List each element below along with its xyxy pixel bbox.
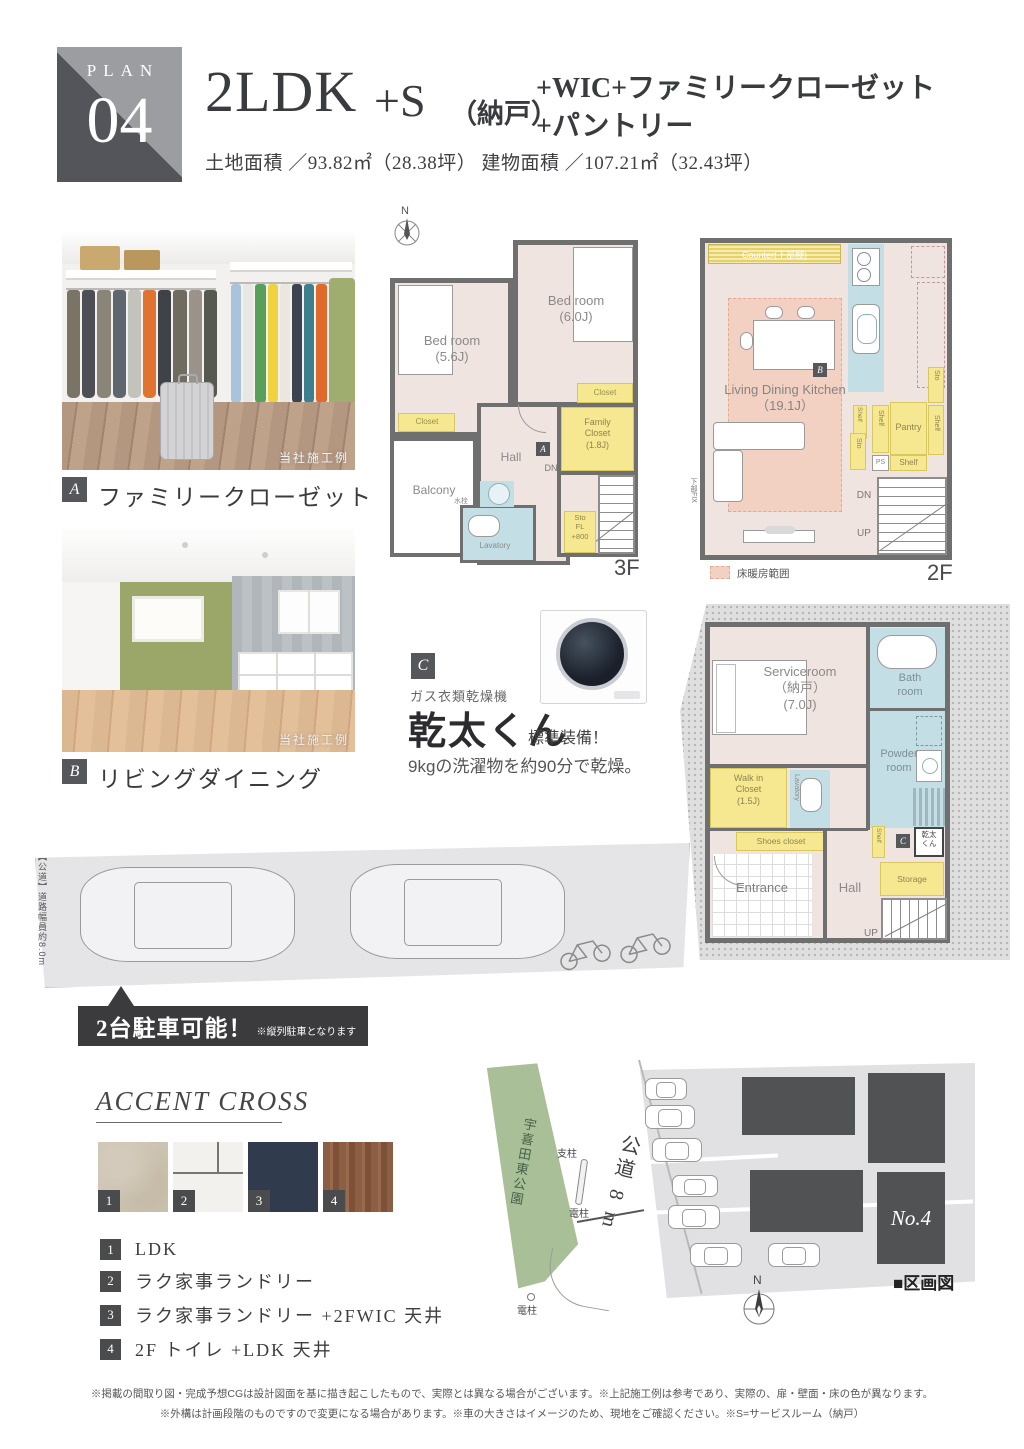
decor-downlight2 xyxy=(262,552,268,558)
decor-road-curve xyxy=(543,1248,618,1312)
title-main: 2LDK xyxy=(205,58,357,125)
accent-title: ACCENT CROSS xyxy=(96,1086,309,1117)
badge-a-3f: A xyxy=(536,442,550,456)
decor-swatch2-vline xyxy=(217,1142,219,1174)
decor-sofa-1 xyxy=(713,422,805,450)
badge-c-1f: C xyxy=(896,834,910,848)
decor-fridge-dashed xyxy=(911,246,945,278)
dryer-image xyxy=(540,610,647,704)
accent-item-1-label: LDK xyxy=(135,1239,178,1260)
area-line: 土地面積 ／93.82㎡（28.38坪） 建物面積 ／107.21㎡（32.43… xyxy=(205,148,763,175)
parking-area xyxy=(35,840,690,988)
decor-bathtub xyxy=(877,635,937,669)
accent-item-2-num: 2 xyxy=(100,1271,121,1292)
site-road-label: 公道 8 m xyxy=(593,1131,645,1235)
plan-badge-label: PLAN xyxy=(57,61,182,81)
label-floor-3f: 3F xyxy=(614,555,640,581)
photo-b-watermark: 当社施工例 xyxy=(279,731,349,748)
site-car-5 xyxy=(668,1205,720,1229)
parking-road-label: 【公道】道路幅員約8.0m xyxy=(36,852,49,982)
label-lavatory-3f: Lavatory xyxy=(465,541,525,551)
plan-badge: PLAN 04 xyxy=(57,47,182,182)
label-floor-2f: 2F xyxy=(927,560,953,586)
label-shelf-1f: Shelf xyxy=(874,828,882,843)
floorplan-2f: Counter(下部棚) B Living Dining Kitchen （19… xyxy=(695,230,985,585)
caption-b-badge: B xyxy=(62,759,87,784)
accent-item-3-label: ラク家事ランドリー +2FWIC 天井 xyxy=(135,1302,444,1328)
decor-suitcase xyxy=(160,382,214,460)
label-powder: Powder room xyxy=(875,748,923,776)
wall-under-service xyxy=(708,764,868,768)
decor-pole-shape xyxy=(575,1159,588,1206)
label-hall-1f: Hall xyxy=(828,880,872,896)
accent-list: 1 LDK 2 ラク家事ランドリー 3 ラク家事ランドリー +2FWIC 天井 … xyxy=(100,1239,444,1362)
parking-banner-note: ※縦列駐車となります xyxy=(257,1023,357,1038)
decor-shelf-left xyxy=(66,270,216,280)
wall-bath-powder xyxy=(870,708,945,711)
label-lavatory-1f: Lavatory xyxy=(791,774,800,801)
label-faucet: 水栓 xyxy=(446,498,476,507)
accent-swatch-3: 3 xyxy=(248,1142,318,1212)
label-up-1f: UP xyxy=(858,928,884,941)
decor-downlight1 xyxy=(182,542,188,548)
accent-item-2: 2 ラク家事ランドリー xyxy=(100,1268,444,1294)
label-shelf2: Shelf xyxy=(875,410,884,426)
accent-item-1: 1 LDK xyxy=(100,1239,444,1260)
photo-a-watermark: 当社施工例 xyxy=(279,449,349,466)
site-car-4 xyxy=(672,1175,718,1197)
decor-burner2 xyxy=(857,268,871,282)
floorplan-3f: N Bed room (5.6J) Bed room (6.0J) Closet… xyxy=(388,205,656,577)
photo-family-closet: 当社施工例 xyxy=(62,230,355,470)
label-sto-3f: Sto FL +800 xyxy=(566,513,594,541)
label-storage: Storage xyxy=(880,874,944,885)
accent-item-4: 4 2F トイレ +LDK 天井 xyxy=(100,1336,444,1362)
label-pantry: Pantry xyxy=(890,422,927,433)
site-building-3 xyxy=(750,1170,863,1232)
decor-swatch2-hline xyxy=(173,1172,243,1174)
site-building-1 xyxy=(742,1077,855,1135)
label-bedroom-56j: Bed room (5.6J) xyxy=(402,333,502,366)
decor-powder-mat xyxy=(913,788,945,826)
accent-item-1-num: 1 xyxy=(100,1239,121,1260)
decor-sofa-2 xyxy=(713,450,743,502)
site-car-3 xyxy=(652,1138,702,1162)
footer-line1: ※掲載の間取り図・完成予想CGは設計図面を基に描き起こしたもので、実際とは異なる… xyxy=(0,1386,1024,1401)
decor-toilet-3f xyxy=(468,515,500,537)
decor-window-mullion xyxy=(308,590,310,634)
wall-above-shoes xyxy=(708,828,868,831)
label-sto-right: Sto xyxy=(931,370,940,381)
label-wic: Walk in Closet (1.5J) xyxy=(713,773,784,807)
label-dn-2f: DN xyxy=(851,490,877,503)
label-balcony: Balcony xyxy=(394,483,474,498)
accent-item-3: 3 ラク家事ランドリー +2FWIC 天井 xyxy=(100,1302,444,1328)
label-hall-3f: Hall xyxy=(486,450,536,465)
site-compass-icon xyxy=(737,1285,781,1329)
label-bathroom: Bath room xyxy=(880,672,940,700)
dryer-door xyxy=(556,618,628,690)
accent-underline xyxy=(96,1122,282,1123)
decor-shelf-right xyxy=(230,262,352,272)
accent-item-2-label: ラク家事ランドリー xyxy=(135,1268,315,1294)
label-dn-3f: DN xyxy=(538,463,564,474)
caption-a-text: ファミリークローゼット xyxy=(98,478,373,512)
decor-ceiling-b xyxy=(62,524,355,582)
site-building-no4: No.4 xyxy=(877,1172,945,1264)
label-ldk: Living Dining Kitchen （19.1J） xyxy=(720,382,850,415)
dryer-desc: 9kgの洗濯物を約90分で乾燥。 xyxy=(408,752,641,777)
accent-swatch-1-num: 1 xyxy=(98,1190,120,1212)
decor-suitcase-handle xyxy=(178,374,198,384)
title-sub2: +パントリー xyxy=(536,104,693,144)
label-shelf4: Shelf xyxy=(890,458,927,468)
site-car-1 xyxy=(645,1078,687,1100)
label-fix: 下部FIX xyxy=(688,478,698,503)
decor-chair1 xyxy=(765,306,783,319)
site-plan: No.4 宇喜田東公園 公道 8 m 支柱 電柱 電柱 ■区画図 N xyxy=(465,1055,980,1355)
parking-banner: 2台駐車可能！ ※縦列駐車となります xyxy=(78,1006,368,1046)
label-shelf1: Shelf xyxy=(855,407,863,422)
label-bedroom-6j: Bed room (6.0J) xyxy=(526,293,626,326)
label-kanta: 乾太 くん xyxy=(916,830,942,849)
parking-car-1 xyxy=(80,867,295,962)
accent-item-3-num: 3 xyxy=(100,1305,121,1326)
wall-entrance-right xyxy=(823,831,827,938)
decor-pass-window xyxy=(132,596,204,642)
label-closet1: Closet xyxy=(402,417,452,427)
decor-toilet-1f xyxy=(800,778,822,812)
parking-car-2 xyxy=(350,864,565,959)
dryer-panel xyxy=(614,691,640,699)
accent-swatch-3-num: 3 xyxy=(248,1190,270,1212)
decor-tv xyxy=(765,526,795,534)
accent-swatch-2-num: 2 xyxy=(173,1190,195,1212)
label-up-2f: UP xyxy=(851,528,877,541)
decor-washer-dashed xyxy=(916,716,942,746)
site-building-2 xyxy=(868,1073,945,1163)
flyer-sheet: PLAN 04 2LDK +S （納戸） +WIC+ファミリークローゼット +パ… xyxy=(0,0,1024,1449)
footer-line2: ※外構は計画段階のものですので変更になる場合があります。※車の大きさはイメージの… xyxy=(0,1406,1024,1421)
label-serviceroom: Serviceroom （納戸） (7.0J) xyxy=(740,664,860,713)
site-pole1-label: 支柱 xyxy=(557,1145,577,1160)
label-closet2: Closet xyxy=(581,388,629,398)
decor-basket1 xyxy=(80,246,120,270)
decor-chair3 xyxy=(740,332,753,350)
accent-swatch-4-num: 4 xyxy=(323,1190,345,1212)
decor-vanity-bowl xyxy=(922,758,938,774)
badge-b-2f: B xyxy=(813,363,827,377)
accent-item-4-num: 4 xyxy=(100,1339,121,1360)
title-sub1: +WIC+ファミリークローゼット xyxy=(536,66,935,106)
floorplan-1f: Serviceroom （納戸） (7.0J) Walk in Closet (… xyxy=(680,598,1024,966)
wall-service-right xyxy=(866,626,870,830)
badge-c-feature: C xyxy=(411,653,435,679)
title-plus-s: +S xyxy=(374,74,426,127)
accent-swatch-1: 1 xyxy=(98,1142,168,1212)
parking-banner-text: 2台駐車可能！ xyxy=(96,1009,253,1043)
site-no4-label: No.4 xyxy=(891,1206,931,1231)
decor-basin-3f xyxy=(488,483,510,505)
label-sto-left: Sto xyxy=(853,438,862,449)
site-pole3-label: 電柱 xyxy=(517,1302,537,1317)
caption-b-text: リビングダイニング xyxy=(98,760,323,794)
decor-shelf-mid xyxy=(238,674,353,676)
site-legend: ■区画図 xyxy=(893,1269,954,1294)
label-ps: PS xyxy=(872,459,889,468)
legend-heating-label: 床暖房範囲 xyxy=(737,566,790,581)
decor-bed-pillow xyxy=(716,664,736,733)
site-car-2 xyxy=(645,1105,695,1129)
decor-chair2 xyxy=(797,306,815,319)
accent-swatch-2: 2 xyxy=(173,1142,243,1212)
label-shelf3: Shelf xyxy=(931,415,940,431)
parking-banner-pointer xyxy=(108,986,134,1006)
accent-swatch-4: 4 xyxy=(323,1142,393,1212)
decor-sink-bowl xyxy=(857,314,877,344)
plan-badge-number: 04 xyxy=(57,83,182,159)
site-pole2-label: 電柱 xyxy=(569,1205,589,1220)
legend-heating-swatch xyxy=(710,566,730,579)
decor-burner1 xyxy=(857,252,871,266)
accent-item-4-label: 2F トイレ +LDK 天井 xyxy=(135,1336,333,1362)
site-car-7 xyxy=(768,1243,820,1267)
compass-3f-icon xyxy=(390,215,424,249)
label-family-closet: Family Closet (1.8J) xyxy=(561,417,634,451)
photo-living-dining: 当社施工例 xyxy=(62,524,355,752)
decor-basket2 xyxy=(124,250,160,270)
dryer-standard: 標準装備！ xyxy=(528,724,608,748)
site-car-6 xyxy=(690,1243,742,1267)
decor-pole3-dot xyxy=(527,1293,535,1301)
label-counter: Counter(下部棚) xyxy=(708,248,841,261)
caption-a-badge: A xyxy=(62,477,87,502)
label-shoes: Shoes closet xyxy=(736,836,826,847)
